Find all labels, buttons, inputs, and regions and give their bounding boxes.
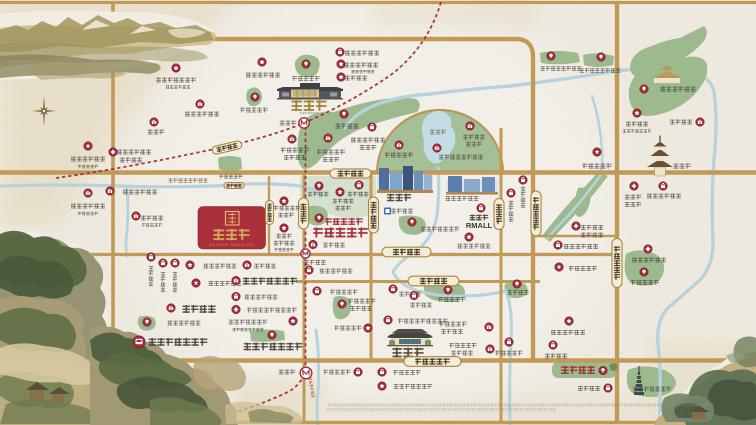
svg-text:SHANHE MANSION: SHANHE MANSION xyxy=(209,243,253,247)
svg-text:RMALL: RMALL xyxy=(466,221,493,230)
